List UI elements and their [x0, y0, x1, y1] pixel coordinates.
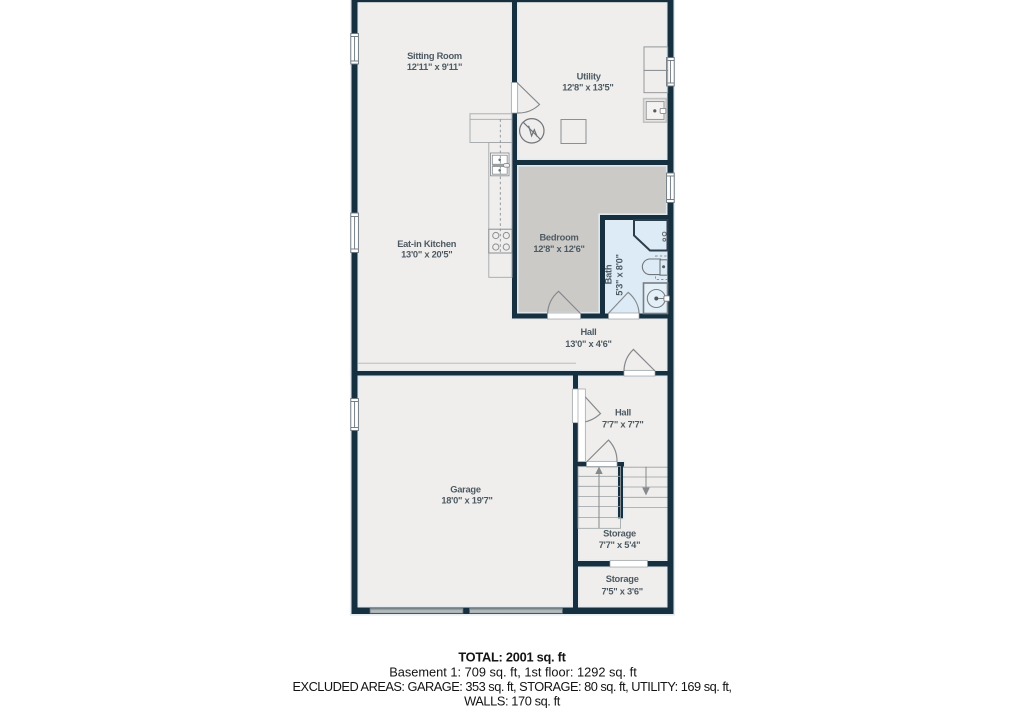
svg-text:Bedroom: Bedroom	[539, 233, 578, 243]
svg-text:12'8" x 13'5": 12'8" x 13'5"	[562, 82, 613, 92]
svg-text:Storage: Storage	[603, 529, 636, 539]
svg-text:5'3" x 8'0": 5'3" x 8'0"	[614, 254, 624, 296]
svg-text:Bath: Bath	[603, 264, 613, 284]
svg-text:EXCLUDED AREAS: GARAGE: 353 sq: EXCLUDED AREAS: GARAGE: 353 sq. ft, STOR…	[293, 679, 732, 694]
svg-text:12'8" x 12'6": 12'8" x 12'6"	[533, 244, 584, 254]
svg-text:Garage: Garage	[450, 485, 481, 495]
svg-text:18'0" x 19'7": 18'0" x 19'7"	[441, 495, 492, 505]
svg-text:7'7" x 7'7": 7'7" x 7'7"	[602, 420, 644, 430]
svg-text:Utility: Utility	[577, 71, 602, 81]
svg-text:7'5" x 3'6": 7'5" x 3'6"	[601, 586, 643, 596]
svg-text:12'11" x 9'11": 12'11" x 9'11"	[407, 62, 462, 72]
svg-text:Hall: Hall	[615, 408, 631, 418]
svg-text:Eat-in Kitchen: Eat-in Kitchen	[397, 239, 457, 249]
svg-text:13'0" x 20'5": 13'0" x 20'5"	[401, 250, 452, 260]
svg-text:Sitting Room: Sitting Room	[407, 51, 462, 61]
svg-text:WALLS: 170 sq. ft: WALLS: 170 sq. ft	[464, 694, 561, 709]
svg-text:Basement 1: 709 sq. ft, 1st fl: Basement 1: 709 sq. ft, 1st floor: 1292 …	[389, 664, 637, 679]
svg-text:TOTAL: 2001 sq. ft: TOTAL: 2001 sq. ft	[458, 650, 566, 665]
svg-text:Hall: Hall	[580, 327, 596, 337]
svg-text:7'7" x 5'4": 7'7" x 5'4"	[599, 540, 641, 550]
svg-text:13'0" x 4'6": 13'0" x 4'6"	[565, 339, 611, 349]
svg-text:Storage: Storage	[606, 574, 639, 584]
